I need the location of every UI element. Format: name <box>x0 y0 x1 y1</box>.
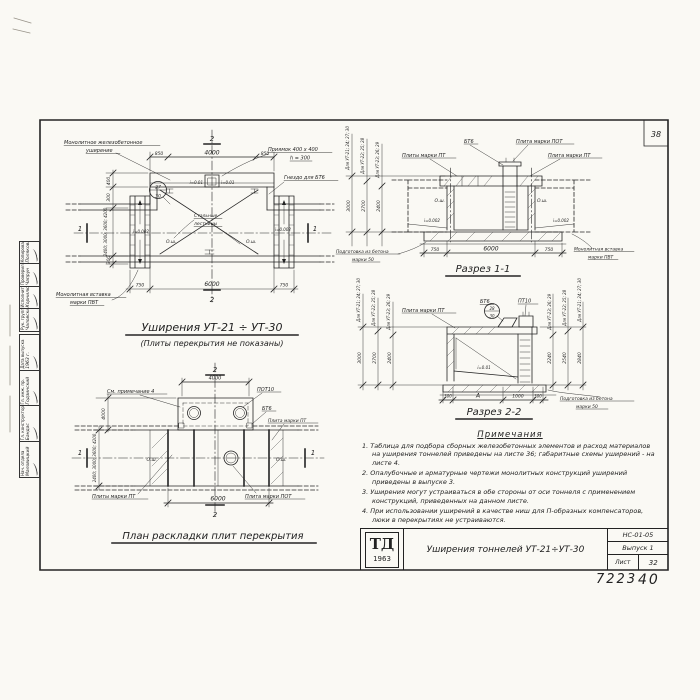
dim-label: 300 <box>534 394 542 399</box>
label-monolithic-insert: Монолитная вставка <box>56 292 111 298</box>
approval-stamp-lower: Нач. отделаМаловицкий Гл. конструкторБан… <box>19 334 40 478</box>
slope-label: i=0.002 <box>275 227 291 232</box>
stamp-name: Чапрун <box>26 266 31 286</box>
label-steel-ladders: лестницы <box>193 222 218 227</box>
signature-scribble <box>31 391 38 405</box>
dim-label: 2400; 3000; 3600; 4200 <box>103 207 108 256</box>
label-monolithic-widening: Монолитное железобетонное <box>64 140 142 146</box>
dim-label: А <box>475 393 480 400</box>
label-see-note: См. примечание 4 <box>107 389 154 395</box>
dim-label: 300 <box>444 394 452 399</box>
org-logo-year: 1963 <box>366 555 398 563</box>
dim-label: 2540 <box>562 352 568 364</box>
dim-label: 3000 <box>346 200 352 212</box>
section-flag-1: 1 <box>78 225 82 233</box>
label-socket-bt6: Гнездо для БТ6 <box>284 175 325 181</box>
sheet-number: 32 <box>639 555 669 570</box>
note-item: 2. Опалубочные и арматурные чертежи моно… <box>362 469 658 486</box>
label-steel-ladders: Стальные <box>194 213 218 219</box>
seam-axis-label: О.ш. <box>166 239 177 245</box>
note-item: 4. При использовании уширений в качестве… <box>362 507 658 524</box>
label-plate-pt: Плита марки ПТ <box>548 153 591 159</box>
label-pot10: ПОТ10 <box>257 387 274 393</box>
note-item: 1. Таблица для подбора сборных железобет… <box>362 442 658 467</box>
dim-label: 2240 <box>547 352 553 364</box>
dim-label: 4000 <box>204 150 219 157</box>
dim-label: 6000 <box>204 281 219 288</box>
label-concrete-prep: марки 50 <box>576 404 598 410</box>
dim-label: 400 <box>106 177 112 186</box>
stamp-name: Полякова <box>26 243 31 263</box>
stamp-role: Гл. конструктор <box>21 408 26 441</box>
label-plate-pt: Плита марки ПТ <box>268 418 307 424</box>
slope-label: i=0.002 <box>424 218 440 223</box>
drawing-title: Уширения тоннелей УТ-21÷УТ-30 <box>404 529 607 570</box>
note-item: 3. Уширения могут устраиваться в обе сто… <box>362 488 658 505</box>
seam-axis-label: О.ш. <box>434 198 445 204</box>
plan-top-labels: 2 2 1 1 Монолитное железобетонное уширен… <box>56 135 325 348</box>
slope-label: i=0.01 <box>190 180 203 185</box>
chain-label: Для УТ-21; 24; 27; 30 <box>577 278 582 323</box>
label-plate-pt: Плита марки ПТ <box>402 308 445 314</box>
label-bt6: БТ6 <box>262 406 272 412</box>
stamp-cell: ИсполнительКорнилюк <box>20 286 39 309</box>
signature-scribble <box>31 249 38 263</box>
label-monolithic-insert: марки ПВТ <box>70 300 99 306</box>
section-flag-2: 2 <box>210 135 215 143</box>
section-flag-1: 1 <box>313 225 317 233</box>
drawing-sheet: 38 <box>0 0 700 700</box>
stamp-cell: Рук. группыЧаловский <box>20 309 39 332</box>
plan-bottom-labels: 2 2 1 1 См. примечание 4 ПОТ10 БТ6 Плита… <box>78 366 315 542</box>
stamp-role: Проверил <box>21 266 26 286</box>
stamp-role: Дата выпуска <box>21 336 26 369</box>
detail-callout: 27 <box>155 185 161 191</box>
section-flag-2: 2 <box>213 511 218 519</box>
section-2-title: Разрез 2-2 <box>467 407 522 418</box>
signature-scribble <box>31 355 38 369</box>
dim-label: 850 <box>261 151 270 157</box>
dim-label: 750 <box>431 247 440 253</box>
org-logo: ТД 1963 <box>361 529 404 570</box>
stamp-role: Исполнитель <box>21 288 26 308</box>
label-pit: Приямок 400 х 400 <box>268 147 318 153</box>
section-1-labels: Для УТ-21; 24; 27; 30 Для УТ-22; 25; 28 … <box>336 126 623 275</box>
stamp-role: Рук. группы <box>21 311 26 331</box>
label-plate-pot: Плита марки ПОТ <box>516 139 563 145</box>
dim-label: 2400 <box>387 352 393 364</box>
detail-callout: 30 <box>489 314 495 319</box>
section-1-title: Разрез 1-1 <box>456 264 511 275</box>
stamp-name: 1963 г. <box>26 336 31 369</box>
chain-label: Для УТ-21; 24; 27; 30 <box>356 278 361 323</box>
chain-label: Для УТ-22; 25; 28 <box>371 289 376 327</box>
dim-label: 2400; 3000; 3600; 4200 <box>92 433 97 482</box>
stamp-cell: ПроверилЧапрун <box>20 264 39 287</box>
signature-scribble <box>31 427 38 441</box>
plan-top-title: Уширения УТ-21 ÷ УТ-30 <box>141 321 282 334</box>
dim-label: 300 <box>106 256 112 265</box>
stamp-cell: Гл. инж. пр.Годзинский <box>20 370 39 406</box>
dim-label: 1000 <box>512 394 524 400</box>
label-concrete-prep: марки 50 <box>352 257 374 263</box>
chain-label: Для УТ-23; 26; 29 <box>375 141 380 179</box>
stamp-name: Маловицкий <box>26 443 31 476</box>
stamp-cell: Нач. отделаМаловицкий <box>20 441 39 477</box>
stamp-cell: Гл. конструкторБандас <box>20 406 39 442</box>
dim-label: 4000 <box>209 376 222 382</box>
stamp-name: Годзинский <box>26 372 31 405</box>
dim-label: 6000 <box>483 246 498 253</box>
signature-scribble <box>31 463 38 477</box>
slope-label: i=0.002 <box>133 229 149 234</box>
doc-code: НС-01-05 <box>608 529 668 542</box>
dim-label: 2400 <box>376 200 382 212</box>
label-pt10: ПТ10 <box>518 299 531 305</box>
label-monolithic-insert: Монолитная вставка <box>574 247 623 253</box>
plan-top-subtitle: (Плиты перекрытия не показаны) <box>141 339 284 348</box>
detail-callout: 30 <box>155 194 161 200</box>
signature-scribble <box>31 272 38 286</box>
seam-axis-label: О.ш. <box>146 457 157 463</box>
chain-label: Для УТ-23; 26; 29 <box>547 293 552 331</box>
signature-scribble <box>31 294 38 308</box>
label-bt6: БТ6 <box>480 299 490 305</box>
issue-number: Выпуск 1 <box>608 542 668 555</box>
section-flag-1: 1 <box>311 449 315 457</box>
stamp-role: Копировал <box>21 243 26 263</box>
sheet-label: Лист <box>608 555 639 570</box>
label-concrete-prep: Подготовка из бетона <box>336 249 389 255</box>
chain-label: Для УТ-21; 24; 27; 30 <box>345 126 350 171</box>
label-pit: h = 300 <box>290 156 310 162</box>
dim-label: 750 <box>545 247 554 253</box>
dim-label: 2840 <box>577 352 583 364</box>
drawing-canvas: 38 <box>0 0 700 700</box>
archive-page-number: 40 <box>638 572 660 588</box>
section-flag-1: 1 <box>78 449 82 457</box>
seam-axis-label: О.ш. <box>276 457 287 463</box>
label-bt6: БТ6 <box>464 139 474 145</box>
section-flag-2: 2 <box>213 366 218 374</box>
label-plates-pt: Плиты марки ПТ <box>92 494 136 500</box>
stamp-name: Чаловский <box>26 311 31 331</box>
stamp-name: Бандас <box>26 408 31 441</box>
chain-label: Для УТ-22; 25; 28 <box>562 289 567 327</box>
seam-axis-label: О.ш. <box>246 239 257 245</box>
dim-label: 850 <box>155 151 164 157</box>
stamp-cell: КопировалПолякова <box>20 242 39 264</box>
chain-label: Для УТ-22; 25; 28 <box>360 137 365 175</box>
title-block: ТД 1963 Уширения тоннелей УТ-21÷УТ-30 НС… <box>360 528 668 570</box>
stamp-name: Корнилюк <box>26 288 31 308</box>
label-monolithic-widening: уширение <box>85 148 113 154</box>
dim-label: 6000 <box>210 496 225 503</box>
dim-label: 300 <box>106 193 112 202</box>
label-plate-pot: Плита марки ПОТ <box>245 494 292 500</box>
slope-label: i=0.01 <box>477 365 490 370</box>
slope-label: i=0.01 <box>221 180 234 185</box>
dim-label: 750 <box>280 283 289 289</box>
label-concrete-prep: Подготовка из бетона <box>560 396 613 402</box>
detail-callout: 28 <box>489 306 495 311</box>
dim-label: 2700 <box>372 352 378 364</box>
notes-block: Примечания 1. Таблица для подбора сборны… <box>362 430 658 524</box>
label-plates-pt: Плиты марки ПТ <box>402 153 446 159</box>
slope-label: i=0.002 <box>553 218 569 223</box>
dim-label: 4000 <box>101 408 107 420</box>
notes-title: Примечания <box>362 430 658 440</box>
page-corner-number: 38 <box>651 130 661 139</box>
dim-label: 2700 <box>361 200 367 212</box>
plan-bottom-title: План раскладки плит перекрытия <box>122 531 303 542</box>
archive-number: 7223 <box>596 572 637 587</box>
stamp-cell: Дата выпуска1963 г. <box>20 335 39 370</box>
seam-axis-label: О.ш. <box>537 198 548 204</box>
org-logo-text: ТД <box>366 533 398 555</box>
dim-label: 3000 <box>357 352 363 364</box>
approval-stamp-upper: Рук. группыЧаловский ИсполнительКорнилюк… <box>19 241 40 332</box>
dim-label: 750 <box>136 283 145 289</box>
section-flag-2: 2 <box>210 296 215 304</box>
chain-label: Для УТ-23; 26; 29 <box>386 293 391 331</box>
signature-scribble <box>31 317 38 331</box>
label-monolithic-insert: марки ПВТ <box>588 255 615 261</box>
section-2-labels: Для УТ-21; 24; 27; 30 Для УТ-22; 25; 28 … <box>356 278 613 418</box>
